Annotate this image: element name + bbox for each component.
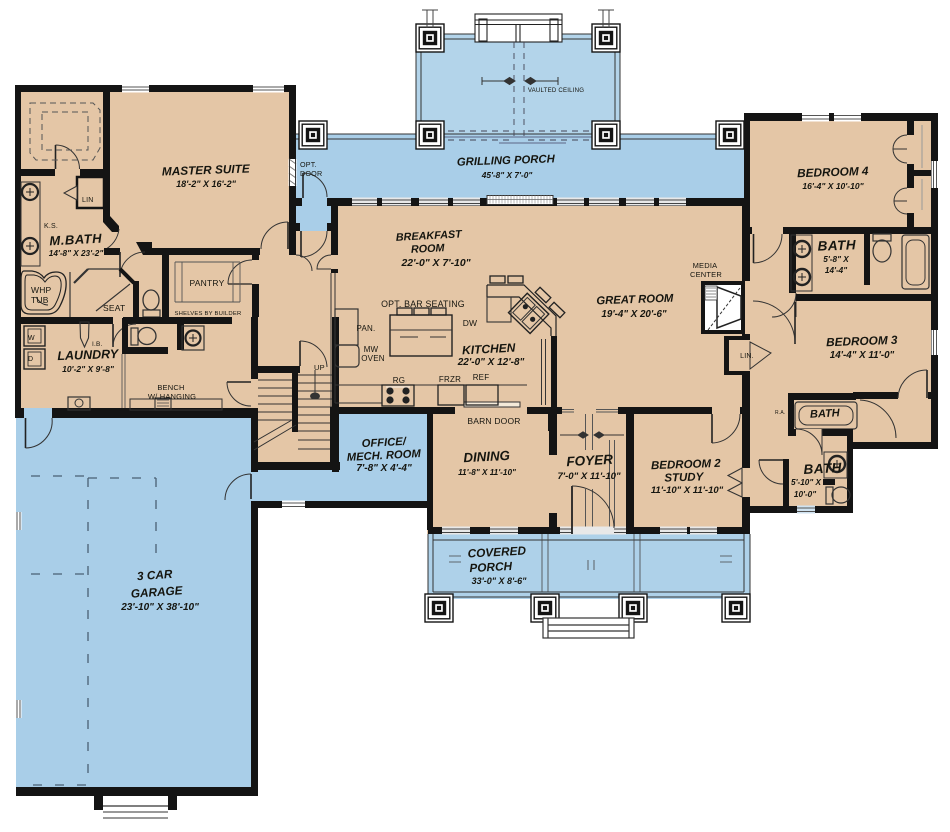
svg-text:5'-8" X: 5'-8" X bbox=[823, 255, 849, 264]
svg-text:OPT.: OPT. bbox=[300, 160, 317, 169]
svg-text:STUDY: STUDY bbox=[664, 471, 705, 484]
svg-text:SEAT: SEAT bbox=[103, 303, 125, 313]
svg-text:KITCHEN: KITCHEN bbox=[462, 341, 516, 358]
svg-text:22'-0" X 12'-8": 22'-0" X 12'-8" bbox=[457, 357, 525, 368]
svg-text:BARN DOOR: BARN DOOR bbox=[467, 416, 520, 426]
svg-text:DOOR: DOOR bbox=[300, 169, 322, 178]
svg-text:FRZR: FRZR bbox=[439, 375, 461, 384]
svg-text:M.BATH: M.BATH bbox=[49, 231, 102, 249]
svg-text:7'-0" X 11'-10": 7'-0" X 11'-10" bbox=[557, 471, 621, 482]
svg-text:LIN: LIN bbox=[82, 197, 94, 204]
svg-text:PAN.: PAN. bbox=[357, 324, 376, 333]
svg-text:PANTRY: PANTRY bbox=[190, 278, 225, 288]
svg-text:33'-0" X 8'-6": 33'-0" X 8'-6" bbox=[472, 576, 528, 586]
svg-text:ROOM: ROOM bbox=[411, 242, 446, 256]
svg-text:CENTER: CENTER bbox=[690, 270, 722, 279]
svg-text:5'-10" X: 5'-10" X bbox=[791, 478, 821, 487]
svg-text:I.B.: I.B. bbox=[92, 341, 103, 348]
svg-text:MEDIA: MEDIA bbox=[693, 261, 718, 270]
svg-text:K.S.: K.S. bbox=[44, 223, 58, 230]
svg-text:OVEN: OVEN bbox=[361, 354, 384, 363]
svg-text:BEDROOM 3: BEDROOM 3 bbox=[826, 333, 898, 350]
svg-text:BENCH: BENCH bbox=[157, 383, 184, 392]
svg-text:REF: REF bbox=[473, 373, 490, 382]
svg-text:OPT. BAR SEATING: OPT. BAR SEATING bbox=[381, 299, 465, 309]
svg-text:D: D bbox=[28, 356, 33, 363]
svg-text:VAULTED CEILING: VAULTED CEILING bbox=[528, 87, 584, 94]
svg-text:PORCH: PORCH bbox=[469, 559, 513, 575]
svg-text:11'-8" X 11'-10": 11'-8" X 11'-10" bbox=[458, 468, 516, 477]
svg-text:14'-4" X 11'-0": 14'-4" X 11'-0" bbox=[830, 350, 895, 361]
svg-text:23'-10" X 38'-10": 23'-10" X 38'-10" bbox=[120, 602, 199, 613]
svg-text:14'-8" X 23'-2": 14'-8" X 23'-2" bbox=[49, 249, 104, 258]
svg-text:22'-0" X 7'-10": 22'-0" X 7'-10" bbox=[400, 258, 471, 269]
svg-text:WHP: WHP bbox=[31, 285, 52, 295]
svg-text:DW: DW bbox=[463, 318, 478, 328]
svg-text:R.A.: R.A. bbox=[775, 410, 786, 416]
svg-text:3 CAR: 3 CAR bbox=[137, 567, 174, 583]
svg-text:LAUNDRY: LAUNDRY bbox=[57, 347, 120, 363]
svg-text:UP: UP bbox=[314, 363, 325, 372]
svg-text:LIN.: LIN. bbox=[740, 353, 754, 360]
svg-text:BATH: BATH bbox=[803, 460, 842, 477]
svg-text:BATH: BATH bbox=[810, 407, 841, 421]
svg-text:19'-4" X 20'-6": 19'-4" X 20'-6" bbox=[601, 309, 666, 320]
svg-text:BATH: BATH bbox=[817, 237, 856, 253]
svg-text:OFFICE/: OFFICE/ bbox=[361, 436, 408, 450]
svg-text:RG: RG bbox=[393, 376, 405, 385]
svg-text:11'-10" X 11'-10": 11'-10" X 11'-10" bbox=[651, 485, 724, 496]
svg-text:W: W bbox=[28, 335, 35, 342]
svg-text:W/ HANGING: W/ HANGING bbox=[148, 392, 196, 401]
svg-text:16'-4" X 10'-10": 16'-4" X 10'-10" bbox=[802, 181, 864, 191]
svg-text:45'-8" X 7'-0": 45'-8" X 7'-0" bbox=[481, 170, 534, 180]
svg-text:14'-4": 14'-4" bbox=[825, 266, 847, 275]
svg-text:10'-0": 10'-0" bbox=[794, 490, 816, 499]
svg-text:BEDROOM 4: BEDROOM 4 bbox=[797, 164, 869, 181]
svg-text:SHELVES BY BUILDER: SHELVES BY BUILDER bbox=[175, 311, 242, 317]
svg-text:DINING: DINING bbox=[463, 448, 510, 465]
svg-text:FOYER: FOYER bbox=[566, 452, 613, 469]
svg-text:10'-2" X 9'-8": 10'-2" X 9'-8" bbox=[62, 364, 115, 374]
svg-text:18'-2" X 16'-2": 18'-2" X 16'-2" bbox=[176, 179, 237, 189]
svg-text:MW: MW bbox=[364, 345, 379, 354]
svg-text:7'-8" X 4'-4": 7'-8" X 4'-4" bbox=[356, 463, 412, 474]
svg-text:TUB: TUB bbox=[31, 295, 49, 305]
svg-text:BEDROOM 2: BEDROOM 2 bbox=[651, 458, 722, 472]
